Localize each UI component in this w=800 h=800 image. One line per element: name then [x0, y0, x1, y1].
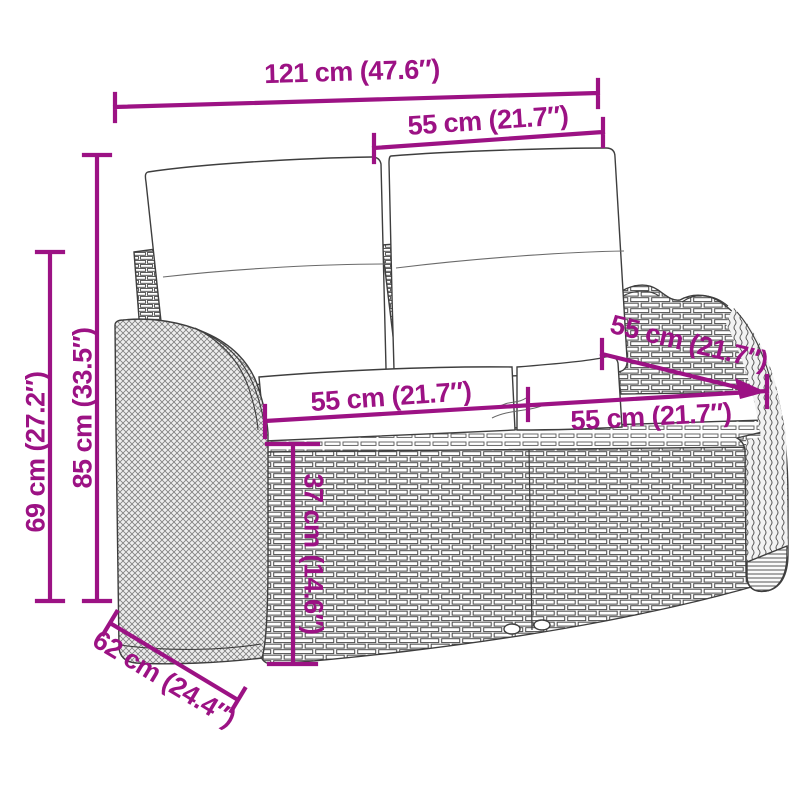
left-armrest — [115, 319, 268, 664]
base-foot-right — [534, 620, 550, 630]
dim-label-total-height: 85 cm (33.5″) — [68, 327, 99, 488]
back-cushion-right — [389, 148, 627, 380]
wicker-base — [258, 447, 764, 664]
dim-label-armrest-height: 69 cm (27.2″) — [21, 371, 52, 532]
dim-label-seat-height: 37 cm (14.6″) — [298, 473, 329, 634]
dim-label-total-width: 121 cm (47.6″) — [264, 54, 440, 90]
base-foot-left — [504, 624, 520, 634]
dimension-diagram: 121 cm (47.6″) 55 cm (21.7″) 85 cm (33.5… — [0, 0, 800, 800]
